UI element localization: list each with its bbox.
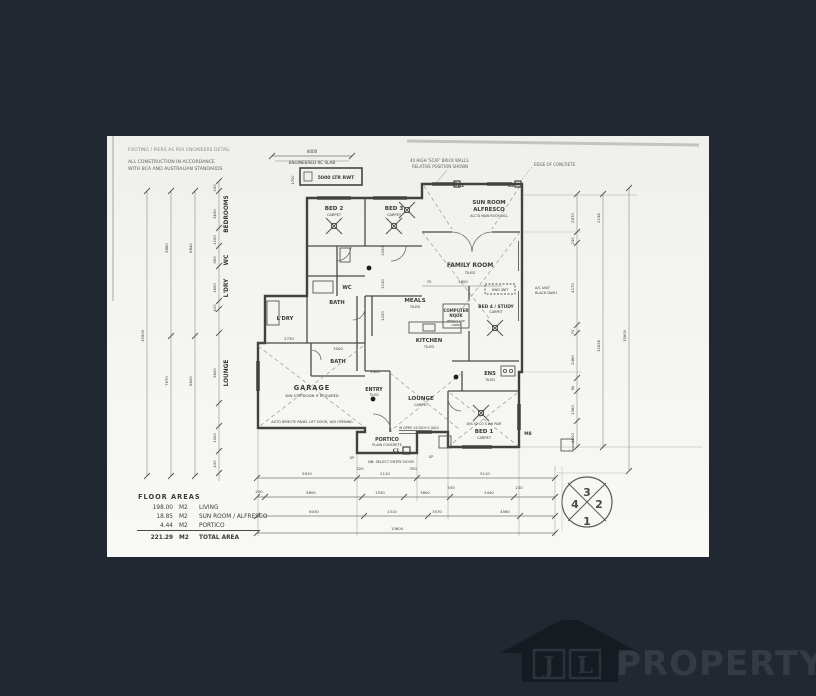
room-bed3: BED 3 (385, 206, 404, 212)
room-bath2: BATH (330, 359, 345, 365)
room-garage: GARAGE (294, 384, 331, 392)
room-bed4-floor: CARPET (489, 310, 503, 314)
dim-530: 530 (447, 485, 455, 490)
top-annotations: 4000 ENGINEERED RC SLAB 40 HIGH 'SCAF' B… (269, 149, 576, 182)
tag-lounge: LOUNGE (224, 360, 230, 387)
column-c2: C2 (458, 183, 464, 189)
brick-note-1: 40 HIGH 'SCAF' BRICK WALLS (410, 158, 469, 163)
quadrant-2: 2 (595, 498, 603, 511)
quadrant-1: 1 (583, 515, 591, 528)
dim-3630: 3630 (212, 209, 217, 219)
rwt-label: 5000 LTR RWT (318, 175, 355, 181)
room-bed3-floor: CARPET (387, 213, 402, 217)
dim-inner-2600: 2600 (458, 279, 468, 284)
dim-230-l: 230 (212, 184, 217, 192)
dim-70: 70 (570, 329, 575, 334)
logo-brand-name: PROPERTY (616, 644, 816, 684)
room-bed2-floor: CARPET (327, 213, 342, 217)
screenshot-canvas: { "canvas": {"bg": "#222831", "paper": "… (0, 0, 816, 696)
rwt-side-dim: 1700 (291, 175, 295, 185)
dim-430: 430 (212, 460, 217, 468)
dim-1100: 1100 (212, 235, 217, 245)
area-living-value: 198.00 (153, 505, 174, 511)
tag-bedrooms: BEDROOMS (224, 195, 230, 232)
area-portico-unit: M2 (179, 523, 188, 529)
room-sunroom-note: ACC'D MAIN ROOF INCL (470, 214, 508, 218)
ceiling-fans (326, 202, 503, 421)
dim-1000: 1000 (212, 433, 217, 443)
bed1-window-note: W/S 92 CO S WH PAIR (467, 422, 503, 426)
note-footing: FOOTING / PIERS AS PER ENGINEERS DETAIL (128, 147, 230, 153)
note-bca-2: WITH BCA AND AUSTRALIAN STANDARDS (128, 166, 223, 172)
room-lounge-floor: CARPET (414, 403, 429, 407)
dim-5910: 5910 (302, 471, 312, 476)
room-ldry: L'DRY (277, 316, 294, 322)
room-bed1: BED 1 (475, 429, 494, 435)
dim-inner-1400: 1400 (370, 369, 380, 374)
left-room-tags: BEDROOMS WC L'DRY LOUNGE (224, 195, 230, 386)
dim-4170: 4170 (570, 283, 575, 293)
roof-lines (258, 186, 520, 445)
watermark-logo: J L PROPERTY (500, 612, 816, 692)
dim-hall-1130: 1130 (380, 279, 385, 289)
dim-3440: 3440 (484, 490, 494, 495)
dim-2110: 2110 (380, 471, 390, 476)
dim-350: 350 (409, 466, 417, 471)
room-family-floor: TILED (464, 271, 476, 275)
dim-3570: 3570 (432, 509, 442, 514)
dim-6840: 6840 (188, 243, 193, 253)
area-sunroom-desc: SUN ROOM / ALFRESCO (199, 514, 268, 520)
dim-320: 320 (356, 466, 364, 471)
logo-letter-j: J (542, 652, 555, 679)
room-kitchen-floor: TILED (423, 345, 435, 349)
dim-6600: 6600 (188, 376, 193, 386)
areas-title: FLOOR AREAS (138, 493, 201, 501)
hwd-unit-label: HWD UNIT (492, 288, 509, 292)
room-portico-floor: PLAIN CONCRETE (372, 443, 402, 447)
dim-6030: 6030 (309, 509, 319, 514)
area-living-desc: LIVING (199, 505, 219, 511)
dim-7670: 7670 (164, 376, 169, 386)
area-portico-desc: PORTICO (199, 523, 225, 529)
dim-inner-70: 70 (427, 279, 432, 284)
dim-5110: 5110 (480, 471, 490, 476)
room-bed2: BED 2 (325, 206, 344, 212)
dim-15800: 15800 (622, 329, 627, 342)
dim-1310: 1310 (387, 509, 397, 514)
edge-concrete-label: EDGE OF CONCRETE (534, 162, 576, 167)
dim-13600: 13600 (391, 526, 404, 531)
jl-property-logo: J L PROPERTY (500, 612, 816, 692)
room-ens: ENS (484, 371, 496, 377)
dim-2136: 2136 (596, 213, 601, 223)
room-labels: BED 2 CARPET BED 3 CARPET SUN ROOM ALFRE… (271, 183, 557, 464)
dim-1600-r: 1600 (570, 433, 575, 443)
quadrant-circle: 3 2 1 4 (557, 466, 627, 531)
garage-door-note: AUTO REMOTE PANEL LIFT DOOR, W/S OPENING (271, 420, 353, 424)
area-sunroom-value: 18.85 (156, 514, 173, 520)
dim-5800: 5800 (306, 490, 316, 495)
area-total-desc: TOTAL AREA (199, 535, 239, 541)
brick-note-2: RELATIVE POSITION SHOWN (412, 164, 468, 169)
note-bca-1: ALL CONSTRUCTION IN ACCORDANCE (128, 159, 215, 165)
computer-linen: LINEN (452, 323, 461, 327)
ac-unit-label: A/C UNIT (535, 286, 551, 290)
dim-410: 410 (212, 304, 217, 312)
entry-door-note: NB: SELECT ENTRY DOOR (368, 460, 414, 464)
gp-marker: GP (350, 456, 355, 460)
column-c3: C3 (508, 183, 514, 189)
right-dim-labels: 2970 230 4170 70 2460 90 1060 1600 2136 … (570, 213, 627, 443)
left-dim-labels: 15900 5860 7670 6840 6600 230 3630 1100 … (140, 184, 217, 468)
room-family: FAMILY ROOM (447, 262, 493, 269)
dim-230-b1: 230 (255, 489, 263, 494)
dim-2970: 2970 (570, 213, 575, 223)
room-bed1-floor: CARPET (477, 436, 492, 440)
area-sunroom-unit: M2 (179, 514, 188, 520)
room-sunroom-2: ALFRESCO (473, 207, 505, 213)
dim-4000: 4000 (307, 149, 318, 154)
area-total-value: 221.29 (151, 535, 173, 541)
dim-90: 90 (570, 385, 575, 390)
ac-unit-label-2: BLACK DASH (535, 291, 557, 295)
room-kitchen: KITCHEN (416, 338, 443, 344)
dim-230-r: 230 (570, 237, 575, 245)
bottom-dim-labels: 5910 320 2110 350 5110 230 5800 1530 380… (255, 466, 523, 531)
room-lounge: LOUNGE (408, 396, 434, 402)
dim-900: 900 (212, 256, 217, 264)
fan-bed4 (487, 320, 503, 336)
window-codes: W DPRO 19 DICH S GALV (399, 426, 439, 430)
dim-5860: 5860 (164, 243, 169, 253)
floor-areas-table: FLOOR AREAS 198.00 M2 LIVING 18.85 M2 SU… (137, 493, 268, 541)
dim-3800: 3800 (420, 490, 430, 495)
tag-wc: WC (224, 255, 230, 266)
room-entry-floor: TILED (368, 393, 379, 397)
quadrant-3: 3 (583, 486, 591, 499)
room-wc: WC (342, 285, 352, 291)
m8-marker: M8 (524, 431, 531, 437)
gp-marker-2: GP (429, 455, 434, 459)
windows (257, 183, 522, 449)
portico-column-c1: C1 (393, 448, 400, 454)
construction-notes: FOOTING / PIERS AS PER ENGINEERS DETAIL … (128, 147, 230, 172)
rainwater-tank: 5000 LTR RWT 1700 (291, 168, 362, 185)
room-bath: BATH (329, 300, 344, 306)
dim-2460: 2460 (570, 355, 575, 365)
fan-bed2 (326, 218, 342, 234)
room-meals: MEALS (404, 298, 425, 304)
dim-230-b2: 230 (515, 485, 523, 490)
dim-1530: 1530 (375, 490, 385, 495)
room-garage-note: B/W STEPDOWN IF REQUIRED (285, 394, 339, 398)
room-meals-floor: TILED (409, 305, 421, 309)
dim-inner-2730: 2730 (284, 336, 294, 341)
dim-1600-l: 1600 (212, 283, 217, 293)
dim-15900: 15900 (140, 329, 145, 342)
room-sunroom: SUN ROOM (472, 200, 505, 206)
fan-bed1 (473, 405, 489, 421)
dim-hall-1200: 1200 (380, 246, 385, 256)
dim-hall-1200b: 1200 (380, 311, 385, 321)
floorplan-photo: FOOTING / PIERS AS PER ENGINEERS DETAIL … (107, 136, 709, 557)
room-ens-floor: TILED (484, 378, 495, 382)
tag-ldry: L'DRY (224, 278, 230, 297)
left-dimension-lines: 15900 5860 7670 6840 6600 230 3630 1100 … (140, 178, 230, 481)
dim-4560: 4560 (500, 509, 510, 514)
fan-bed3 (386, 218, 402, 234)
area-portico-value: 4.44 (160, 523, 173, 529)
floorplan-drawing: FOOTING / PIERS AS PER ENGINEERS DETAIL … (107, 136, 709, 557)
dim-12626: 12626 (596, 339, 601, 352)
dim-3600: 3600 (212, 368, 217, 378)
logo-letter-l: L (577, 652, 593, 679)
right-dimension-lines: 2970 230 4170 70 2460 90 1060 1600 2136 … (520, 185, 702, 474)
area-living-unit: M2 (179, 505, 188, 511)
dim-inner-3000: 3000 (333, 346, 343, 351)
dim-1060: 1060 (570, 405, 575, 415)
area-total-unit: M2 (179, 535, 189, 541)
quadrant-4: 4 (571, 498, 579, 511)
room-computer-2: NOOK (449, 313, 463, 318)
